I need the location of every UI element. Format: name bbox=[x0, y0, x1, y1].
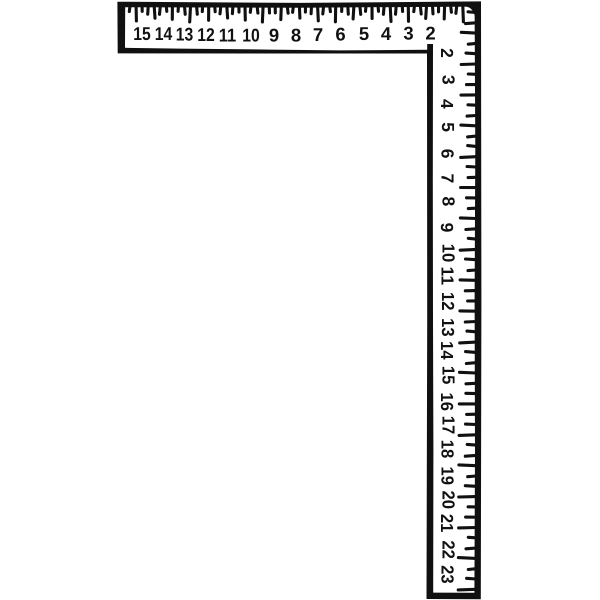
svg-text:2: 2 bbox=[425, 23, 435, 44]
svg-text:19: 19 bbox=[438, 466, 458, 485]
svg-text:16: 16 bbox=[437, 392, 457, 411]
svg-text:13: 13 bbox=[438, 318, 458, 337]
svg-text:10: 10 bbox=[439, 244, 459, 263]
svg-text:23: 23 bbox=[437, 565, 457, 584]
svg-text:14: 14 bbox=[437, 341, 457, 360]
svg-text:20: 20 bbox=[438, 491, 458, 510]
svg-text:7: 7 bbox=[313, 24, 323, 45]
svg-text:4: 4 bbox=[437, 99, 457, 109]
svg-text:11: 11 bbox=[437, 267, 457, 286]
svg-text:5: 5 bbox=[438, 122, 458, 132]
svg-text:8: 8 bbox=[438, 196, 458, 206]
svg-text:2: 2 bbox=[437, 48, 457, 58]
svg-text:12: 12 bbox=[197, 24, 215, 45]
svg-text:17: 17 bbox=[438, 416, 458, 435]
svg-text:8: 8 bbox=[291, 24, 301, 45]
svg-text:3: 3 bbox=[439, 75, 459, 85]
svg-text:11: 11 bbox=[219, 24, 237, 45]
svg-text:4: 4 bbox=[381, 23, 392, 44]
svg-text:14: 14 bbox=[155, 23, 173, 44]
svg-text:18: 18 bbox=[438, 440, 458, 459]
svg-text:21: 21 bbox=[437, 514, 457, 533]
svg-text:22: 22 bbox=[439, 540, 459, 559]
svg-text:15: 15 bbox=[133, 23, 151, 44]
svg-text:12: 12 bbox=[438, 292, 458, 311]
svg-text:9: 9 bbox=[269, 25, 279, 46]
svg-text:6: 6 bbox=[438, 149, 458, 159]
svg-text:3: 3 bbox=[403, 23, 413, 44]
svg-text:9: 9 bbox=[437, 223, 457, 233]
svg-text:15: 15 bbox=[439, 366, 459, 385]
svg-text:13: 13 bbox=[176, 24, 194, 45]
svg-text:6: 6 bbox=[335, 24, 345, 45]
svg-text:10: 10 bbox=[242, 25, 260, 46]
svg-text:5: 5 bbox=[359, 23, 369, 44]
svg-text:7: 7 bbox=[438, 174, 458, 184]
